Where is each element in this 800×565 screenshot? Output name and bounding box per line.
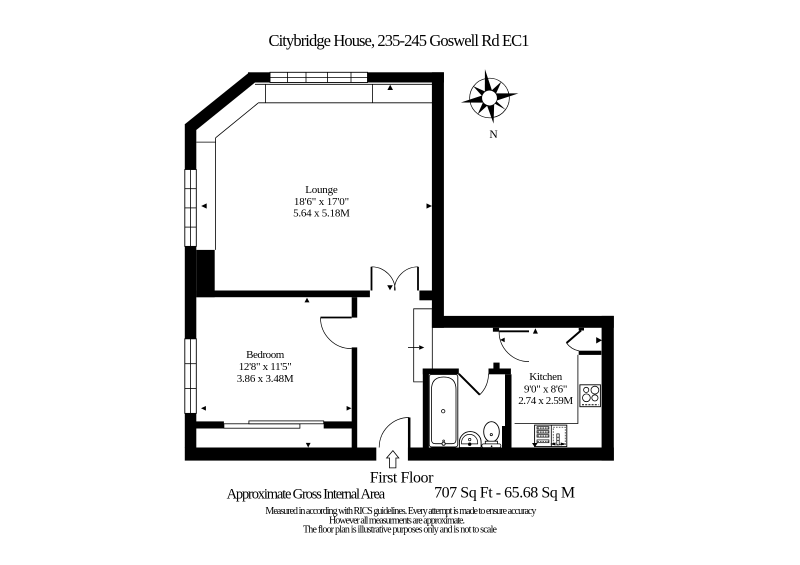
svg-text:9'0" x 8'6": 9'0" x 8'6" <box>524 384 567 396</box>
svg-text:N: N <box>489 129 498 141</box>
svg-text:The floor plan is illustrative: The floor plan is illustrative purposes … <box>303 524 498 535</box>
svg-text:Bedroom: Bedroom <box>246 349 285 361</box>
svg-text:12'8" x 11'5": 12'8" x 11'5" <box>239 361 292 373</box>
svg-text:3.86 x 3.48M: 3.86 x 3.48M <box>237 373 294 385</box>
svg-text:707 Sq Ft - 65.68 Sq M: 707 Sq Ft - 65.68 Sq M <box>434 484 575 501</box>
svg-text:Lounge: Lounge <box>305 184 338 196</box>
svg-text:Kitchen: Kitchen <box>529 371 563 383</box>
svg-text:5.64 x 5.18M: 5.64 x 5.18M <box>293 208 350 220</box>
svg-text:First Floor: First Floor <box>370 470 434 487</box>
svg-text:Approximate Gross Internal Are: Approximate Gross Internal Area <box>227 487 386 503</box>
svg-text:18'6" x 17'0": 18'6" x 17'0" <box>294 196 349 208</box>
svg-text:2.74 x 2.59M: 2.74 x 2.59M <box>518 395 573 407</box>
svg-text:Citybridge House, 235-245 Gosw: Citybridge House, 235-245 Goswell Rd EC1 <box>269 31 530 50</box>
